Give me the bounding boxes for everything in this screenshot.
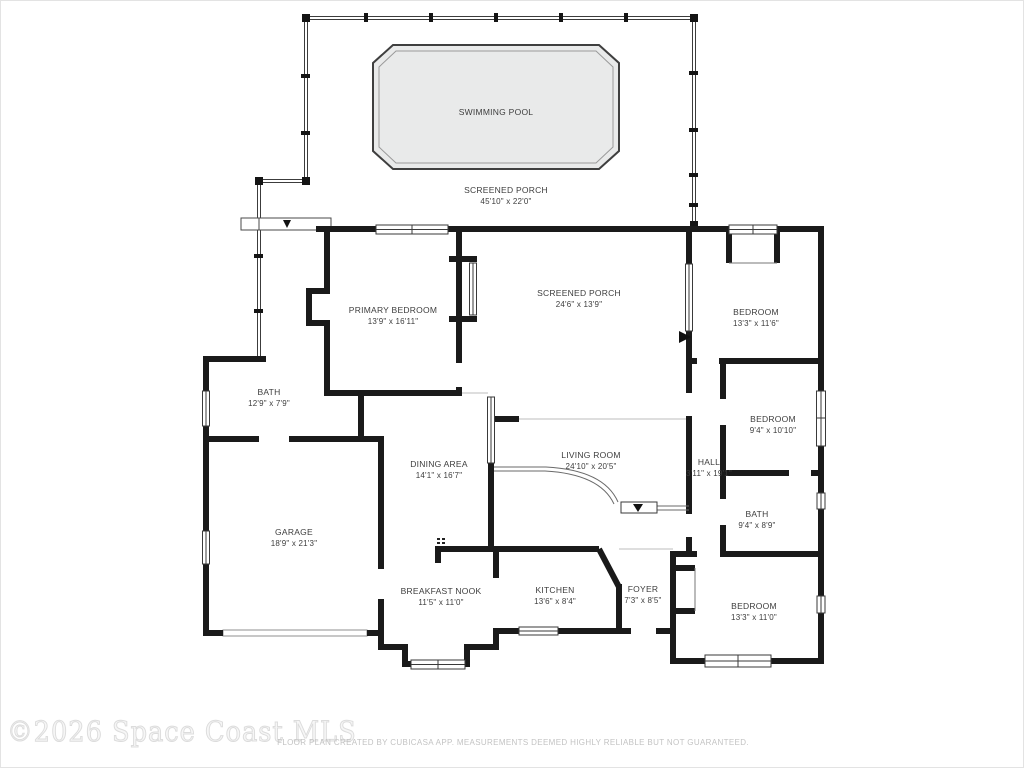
floor-plan-drawing [1, 1, 1024, 768]
living-room-arch [494, 467, 689, 510]
closet-lines [695, 263, 777, 611]
windows [203, 225, 826, 669]
window-bedroom-ne-top [729, 225, 777, 234]
garage-door [223, 630, 367, 636]
window-right-small-1 [817, 493, 825, 509]
window-top-slider [376, 225, 448, 234]
window-kitchen [519, 627, 558, 635]
floor-plan-page: SWIMMING POOL SCREENED PORCH 45'10" x 22… [0, 0, 1024, 768]
window-right-small-2 [817, 596, 825, 613]
closet-slider-primary [470, 263, 477, 315]
living-room-door [621, 502, 657, 513]
floor-registers [437, 538, 445, 544]
window-bedroom-se-bottom [705, 655, 771, 667]
swimming-pool-shape [373, 45, 619, 169]
window-breakfast-bay [411, 660, 465, 669]
disclaimer-text: FLOOR PLAN CREATED BY CUBICASA APP. MEAS… [1, 738, 1024, 747]
slider-porch-bedroom [686, 264, 693, 331]
window-right-large [817, 391, 826, 446]
window-bath-left [203, 391, 210, 426]
walls [203, 226, 824, 667]
window-living-west [488, 397, 495, 463]
window-garage-left [203, 531, 210, 564]
